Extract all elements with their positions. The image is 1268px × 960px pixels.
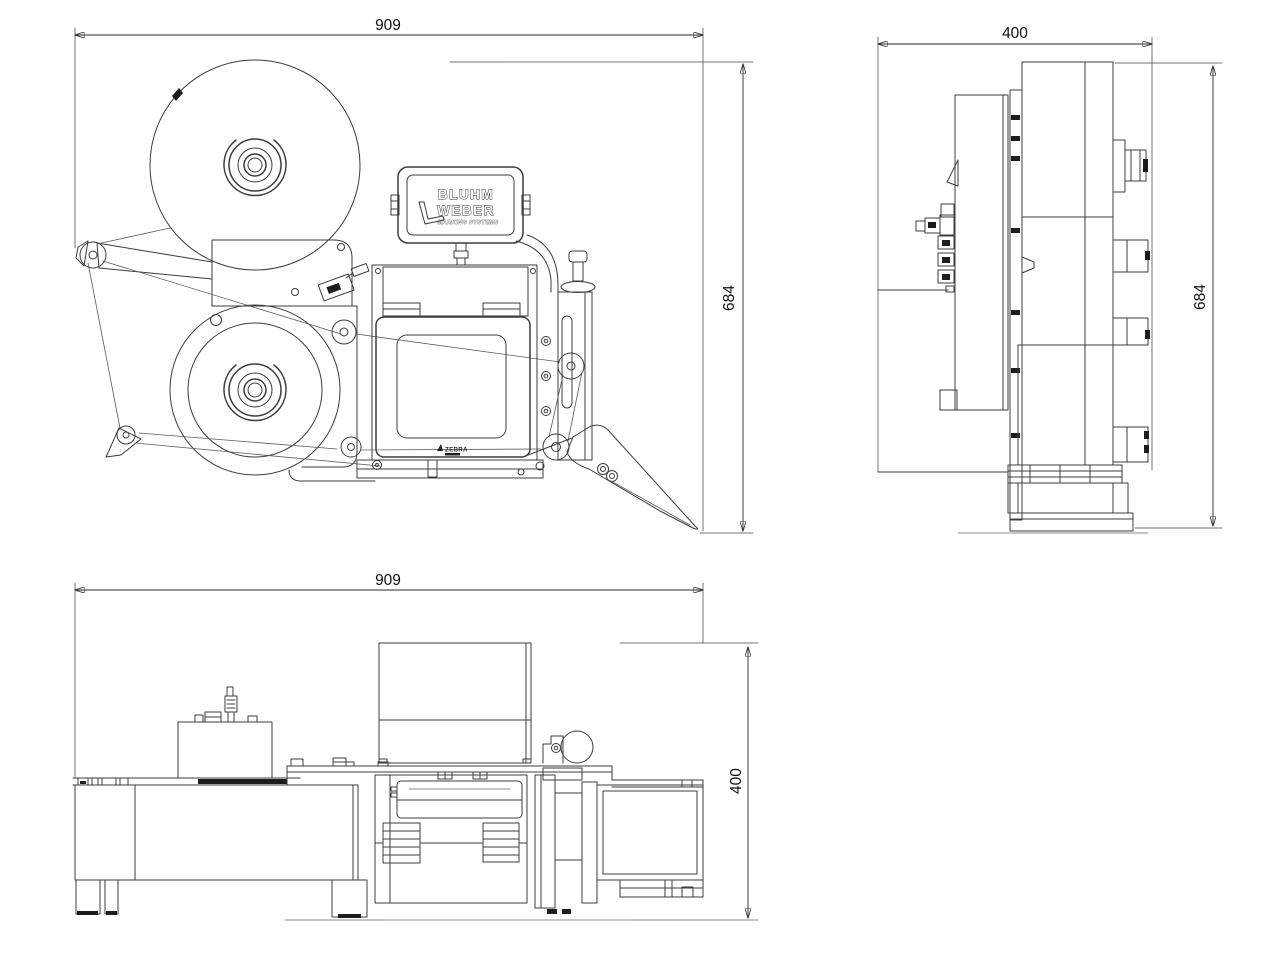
- print-module-bottom: [375, 772, 527, 903]
- side-right-blocks: [1113, 240, 1150, 462]
- sensor-box: [178, 687, 272, 778]
- roll-shaft-nut: [1113, 140, 1148, 192]
- dim-label-side-width: 400: [1002, 25, 1028, 42]
- connector-stack: [916, 204, 954, 292]
- bottom-machine: [73, 643, 758, 920]
- dim-label-front-height: 684: [721, 285, 738, 311]
- tension-bracket: [536, 251, 595, 470]
- dim-label-front-width: 909: [375, 17, 401, 34]
- left-housing: [75, 785, 358, 880]
- printer-brand-logo: ZEBRA: [437, 444, 468, 456]
- dim-front-height: 684: [450, 62, 753, 533]
- side-view: 400 684: [878, 25, 1222, 533]
- dim-label-side-height: 684: [1192, 284, 1209, 310]
- mounting-rail: [287, 758, 703, 787]
- web-sensor: [318, 264, 369, 301]
- bottom-view: 909 400: [73, 572, 758, 920]
- dim-bottom-width: 909: [75, 572, 703, 778]
- right-housing: [597, 780, 703, 897]
- side-machine: [878, 62, 1150, 533]
- ribbed-roller-left: [383, 823, 420, 863]
- dim-front-width: 909: [75, 17, 703, 531]
- brand-line2: WEBER: [437, 203, 495, 218]
- dim-side-height: 684: [1115, 63, 1222, 528]
- front-machine: BLUHM WEBER MARKING SYSTEMS: [76, 60, 698, 529]
- dispense-roller: [543, 731, 593, 780]
- guide-bars: [535, 775, 597, 914]
- print-engine: ZEBRA: [357, 265, 543, 478]
- front-view: 909 684: [75, 17, 753, 533]
- brand-tagline: MARKING SYSTEMS: [437, 220, 498, 226]
- printer-brand-text: ZEBRA: [445, 447, 468, 454]
- side-body: [1018, 62, 1113, 465]
- drawing-svg: 909 684: [0, 0, 1268, 960]
- liner-rewind-roll: [170, 305, 340, 475]
- dim-label-bottom-depth: 400: [728, 768, 745, 794]
- label-supply-roll: [150, 60, 360, 270]
- dispensing-beak: [523, 425, 698, 529]
- brand-line1: BLUHM: [438, 187, 494, 202]
- machine-feet: [76, 880, 367, 918]
- ribbed-roller-right: [483, 823, 519, 862]
- dim-side-width: 400: [878, 25, 1152, 472]
- roll-housing-box: [379, 643, 531, 763]
- side-base: [958, 465, 1148, 533]
- slide-plate: [73, 778, 300, 785]
- label-web-path: [88, 228, 560, 466]
- dim-label-bottom-width: 909: [375, 572, 401, 589]
- technical-drawing-canvas: 909 684: [0, 0, 1268, 960]
